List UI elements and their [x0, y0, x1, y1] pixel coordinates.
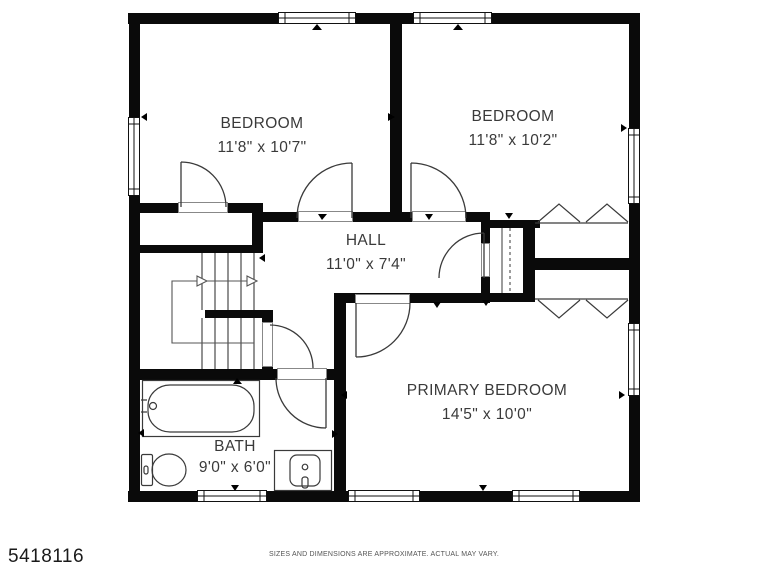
window-glazing [197, 491, 267, 501]
marker-triangle [341, 391, 347, 399]
marker-triangle [619, 391, 625, 399]
staircase [172, 253, 257, 369]
room-name: HALL [346, 232, 386, 249]
marker-triangle [138, 429, 144, 437]
room-label-bedroom-1: BEDROOM 11'8" x 10'7" [182, 112, 342, 160]
room-label-bath: BATH 9'0" x 6'0" [155, 436, 315, 478]
toilet-tank [142, 455, 153, 486]
marker-triangle [479, 485, 487, 491]
room-dimensions: 11'8" x 10'7" [182, 136, 342, 160]
plan-linework [0, 0, 768, 576]
room-dimensions: 14'5" x 10'0" [367, 403, 607, 427]
room-name: BEDROOM [221, 115, 304, 132]
window-glazing [413, 13, 492, 23]
marker-triangle [425, 214, 433, 220]
bedroom-2-door-swing [411, 163, 466, 218]
window-glazing [512, 491, 580, 501]
window-glazing [278, 13, 356, 23]
room-label-primary-bedroom: PRIMARY BEDROOM 14'5" x 10'0" [367, 379, 607, 427]
room-name: BEDROOM [472, 108, 555, 125]
tub-basin [148, 385, 254, 432]
closet-door-swing [181, 162, 226, 207]
room-dimensions: 11'8" x 10'2" [433, 129, 593, 153]
room-dimensions: 9'0" x 6'0" [155, 457, 315, 478]
bedroom-1-door-swing [297, 163, 352, 218]
room-name: PRIMARY BEDROOM [407, 382, 567, 399]
tub-taps [141, 400, 147, 412]
marker-triangle [453, 24, 463, 30]
tub-faucet [150, 403, 157, 410]
marker-triangle [318, 214, 327, 220]
marker-triangle [505, 213, 513, 219]
marker-triangle [141, 113, 147, 121]
bifold-doors-primary-closet [535, 299, 628, 318]
stair-arrow-head [247, 276, 257, 286]
bifold-doors-bedroom-2-closet [535, 204, 628, 223]
marker-triangle [482, 300, 490, 306]
room-dimensions: 11'0" x 7'4" [286, 253, 446, 277]
marker-triangle [621, 124, 627, 132]
stair-direction-line [172, 281, 254, 343]
room-label-hall: HALL 11'0" x 7'4" [286, 229, 446, 277]
marker-triangle [259, 254, 265, 262]
marker-triangle [332, 430, 338, 438]
tub-surround [143, 381, 260, 437]
window-glazing [629, 128, 639, 204]
room-label-bedroom-2: BEDROOM 11'8" x 10'2" [433, 105, 593, 153]
bath-door-swing [276, 378, 326, 428]
linen-closet-shelf-lines [502, 228, 510, 293]
toilet-button [144, 466, 148, 474]
primary-door-swing [356, 303, 410, 357]
bathtub-icon [141, 381, 260, 437]
bifold-closet-doors [535, 204, 628, 318]
marker-triangle [433, 302, 441, 308]
marker-triangle [312, 24, 322, 30]
window-glazing [348, 491, 420, 501]
room-name: BATH [214, 438, 256, 455]
window-glazing [629, 323, 639, 396]
window-glazing [129, 117, 139, 196]
stair-hall-door-swing [270, 325, 313, 368]
marker-triangle [388, 113, 395, 121]
floor-plan-canvas: BEDROOM 11'8" x 10'7" BEDROOM 11'8" x 10… [0, 0, 768, 576]
marker-triangle [231, 485, 239, 491]
disclaimer-text: SIZES AND DIMENSIONS ARE APPROXIMATE. AC… [0, 551, 768, 558]
